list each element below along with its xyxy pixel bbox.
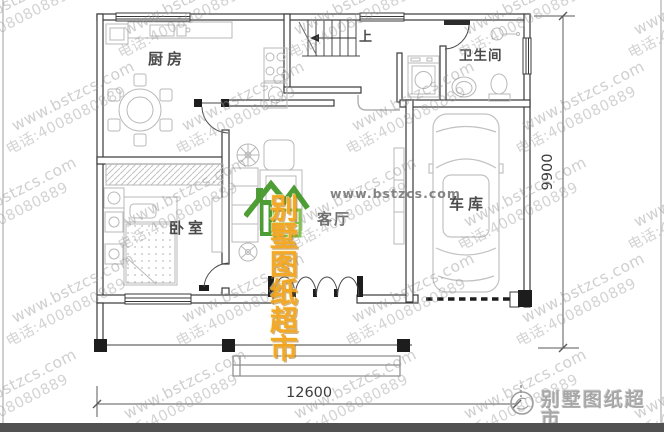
bathroom-door-icon: [444, 20, 470, 49]
living-tv-cabinet-icon: [394, 148, 404, 244]
right-border: [660, 0, 662, 423]
dining-table-icon: [108, 74, 172, 146]
entrance-folding-door-icon: [268, 276, 363, 297]
room-label-living: 客厅: [317, 212, 351, 227]
height-dimension-label: 9900: [541, 150, 557, 194]
fan-icon: [239, 243, 257, 261]
stairs-icon: [299, 20, 360, 56]
plant-icon: [237, 144, 259, 166]
bed-icon: [124, 197, 177, 285]
width-dimension-label: 12600: [286, 386, 332, 401]
floorplan-page: 厨房 卫生间 车库 卧室 客厅 上 12600 9900 www.bstzcs.…: [0, 0, 664, 432]
bedroom-tv-cabinet-icon: [212, 198, 222, 252]
kitchen-door-icon: [194, 99, 229, 133]
steps-icon: [233, 356, 400, 376]
bedroom-door-icon: [199, 263, 228, 291]
left-border: [2, 0, 4, 423]
kitchen-window-icon: [116, 13, 190, 21]
coffee-table-icon: [260, 170, 302, 230]
armchair-icon: [264, 140, 294, 170]
bottom-bar: [0, 423, 664, 432]
toilet-icon: [489, 74, 510, 101]
hall-ledge: [358, 95, 400, 110]
porch-column: [222, 339, 235, 352]
room-label-bathroom: 卫生间: [459, 50, 503, 64]
porch-column: [397, 339, 410, 352]
kitchen-counter-icon: [128, 22, 232, 38]
stair-window-icon: [360, 13, 404, 21]
room-label-kitchen: 厨房: [148, 52, 186, 67]
stairs-up-label: 上: [359, 31, 372, 44]
bedroom-window-icon: [125, 294, 191, 304]
porch-column: [94, 339, 107, 352]
washing-machine-icon: [408, 56, 439, 97]
bathroom-window-icon: [523, 38, 531, 74]
fridge-icon: [106, 24, 128, 44]
nightstand-icon: [104, 188, 124, 264]
wardrobe-icon: [106, 164, 223, 185]
footer-logo-icon: [506, 388, 538, 420]
shower-icon: [491, 28, 520, 40]
bathroom-sink-icon: [452, 77, 476, 97]
room-label-bedroom: 卧室: [169, 221, 207, 236]
porch: [94, 339, 412, 376]
room-label-garage: 车库: [449, 197, 487, 212]
sofa-icon: [232, 168, 258, 242]
